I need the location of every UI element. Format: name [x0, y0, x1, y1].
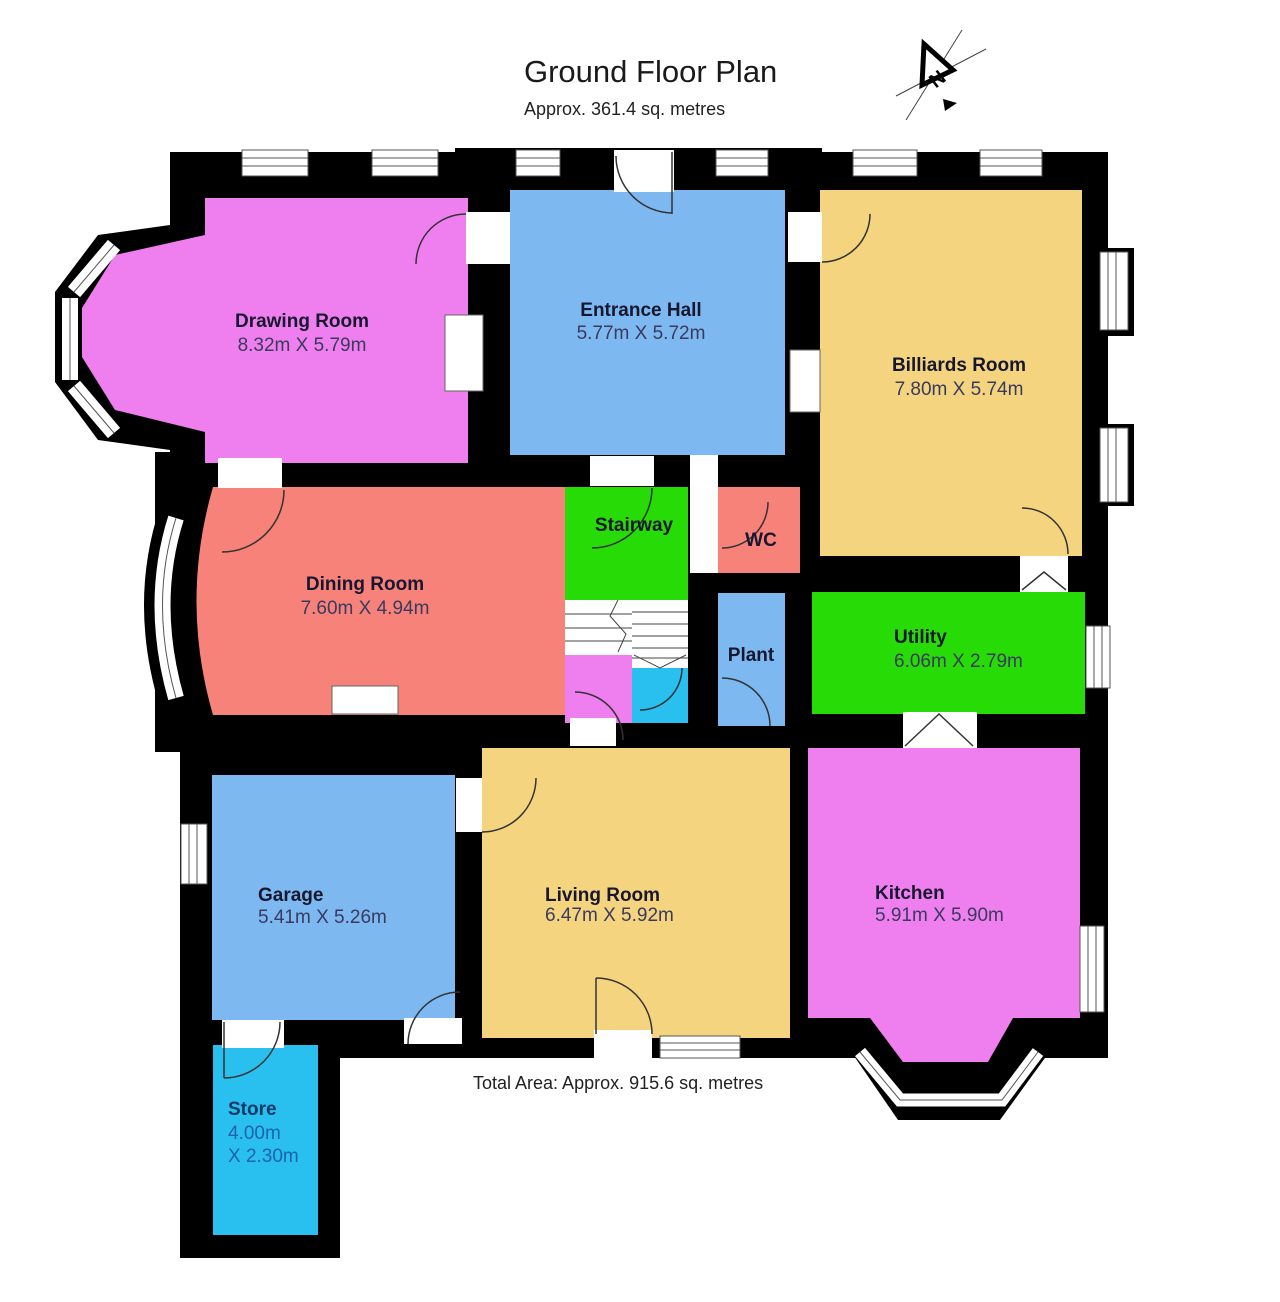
wall-recess-billiards — [790, 350, 820, 412]
stairs — [565, 600, 688, 723]
page-title: Ground Floor Plan — [524, 54, 777, 89]
label-kitchen-dims: 5.91m X 5.90m — [875, 905, 1004, 926]
north-arrow-icon: N — [896, 30, 986, 120]
label-dining-dims: 7.60m X 4.94m — [301, 598, 430, 619]
label-dining-name: Dining Room — [306, 574, 424, 595]
label-utility-name: Utility — [894, 627, 947, 648]
label-billiards-dims: 7.80m X 5.74m — [895, 379, 1024, 400]
stair-cupboard — [632, 668, 688, 723]
floor-plan-svg: Ground Floor Plan Approx. 361.4 sq. metr… — [0, 0, 1280, 1302]
label-garage-name: Garage — [258, 885, 323, 906]
total-area-label: Total Area: Approx. 915.6 sq. metres — [473, 1073, 763, 1093]
floor-plan-page: Ground Floor Plan Approx. 361.4 sq. metr… — [0, 0, 1280, 1302]
room-garage — [212, 775, 455, 1020]
label-store-name: Store — [228, 1099, 277, 1120]
label-living-name: Living Room — [545, 885, 660, 906]
label-store-dims1: 4.00m — [228, 1123, 281, 1144]
label-billiards-name: Billiards Room — [892, 355, 1026, 376]
wc-corridor — [690, 455, 718, 573]
label-garage-dims: 5.41m X 5.26m — [258, 907, 387, 928]
label-living-dims: 6.47m X 5.92m — [545, 905, 674, 926]
label-entrance-dims: 5.77m X 5.72m — [577, 323, 706, 344]
label-stairway-name: Stairway — [595, 515, 674, 536]
page-subtitle: Approx. 361.4 sq. metres — [524, 99, 725, 119]
chimney-recess-drawing — [445, 315, 483, 391]
recess-dining — [332, 686, 398, 714]
label-kitchen-name: Kitchen — [875, 883, 945, 904]
label-drawing-name: Drawing Room — [235, 311, 369, 332]
label-store-dims2: X 2.30m — [228, 1146, 299, 1167]
label-entrance-name: Entrance Hall — [580, 300, 701, 321]
label-drawing-dims: 8.32m X 5.79m — [238, 335, 367, 356]
label-wc-name: WC — [745, 530, 777, 551]
label-utility-dims: 6.06m X 2.79m — [894, 651, 1023, 672]
room-stairway — [565, 487, 688, 600]
stair-landing — [565, 655, 632, 723]
label-plant-name: Plant — [728, 645, 775, 666]
